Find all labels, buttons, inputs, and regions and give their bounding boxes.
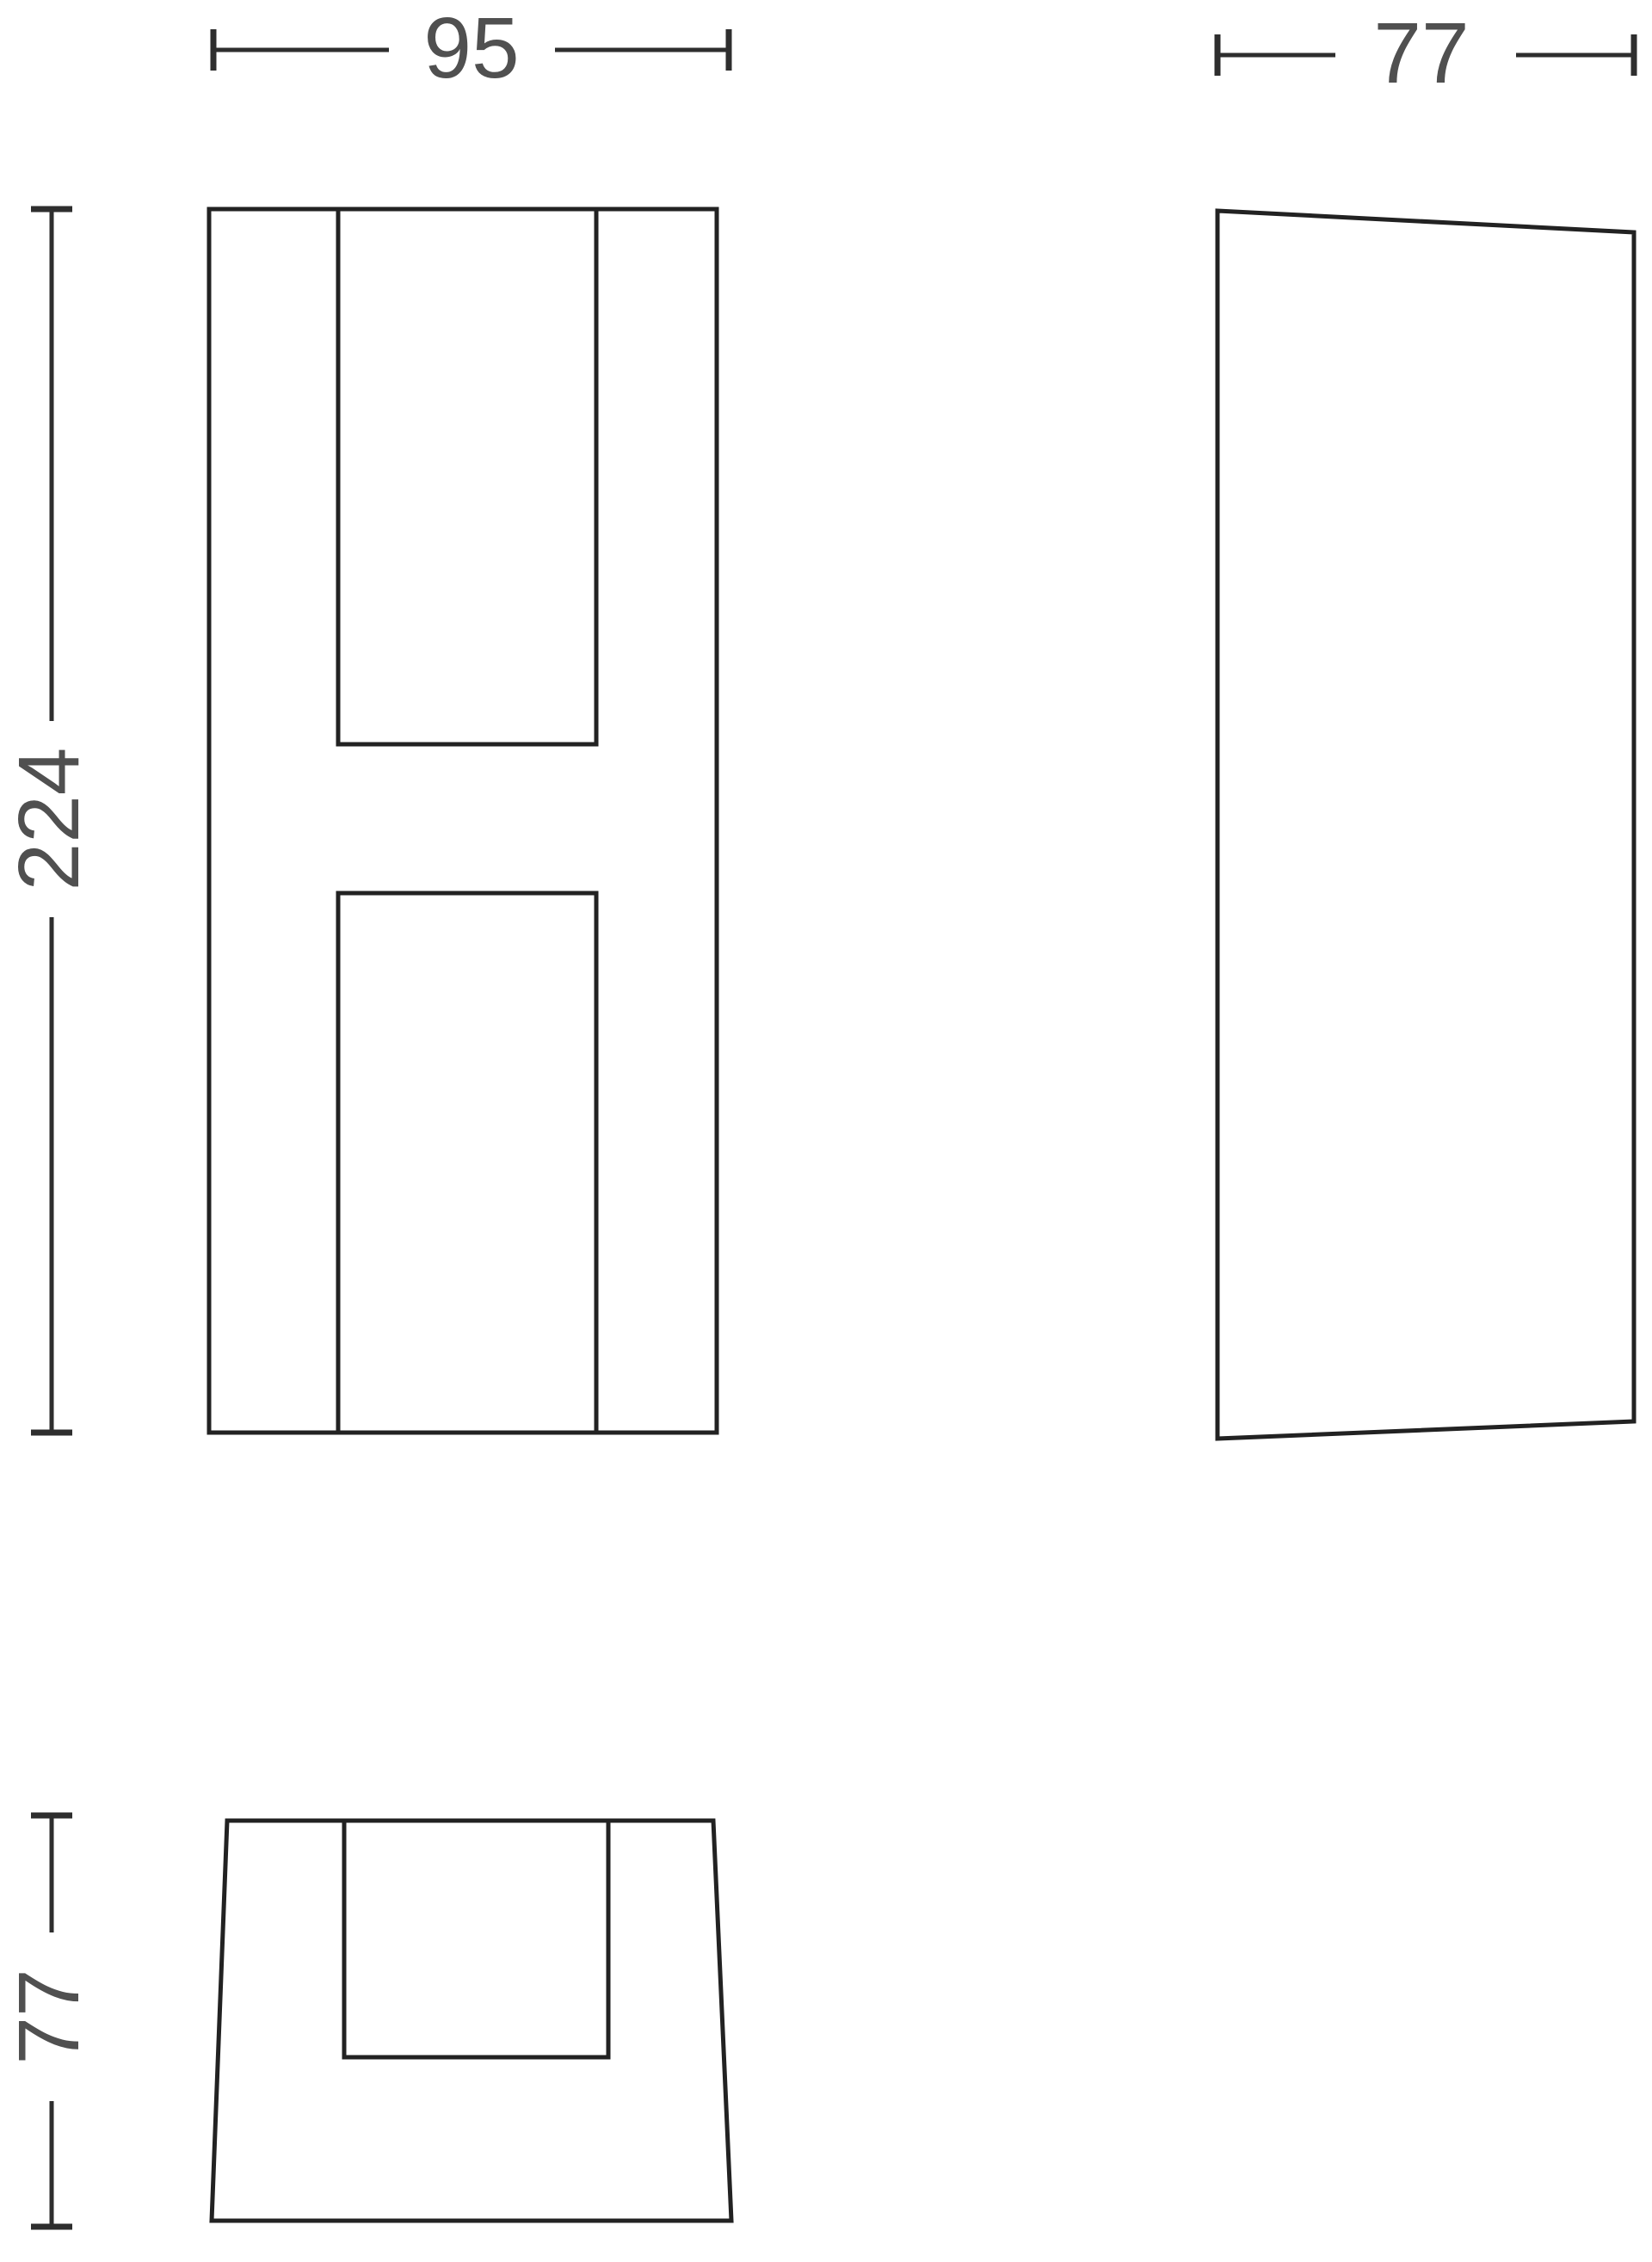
dim-width-95: 95	[213, 0, 729, 96]
side-view	[1217, 211, 1634, 1439]
dim-depth-77-side: 77	[1217, 5, 1634, 102]
dim-depth-77-bottom: 77	[1, 1815, 97, 2227]
bottom-view	[212, 1821, 731, 2221]
dimension-drawing-svg: 952247777	[0, 0, 1652, 2262]
front-recess-bottom	[338, 893, 596, 1433]
bottom-recess	[344, 1821, 608, 2057]
dim-height-224-label: 224	[1, 748, 97, 891]
dim-depth-77-bottom-label: 77	[1, 1969, 97, 2064]
drawing-page: 952247777	[0, 0, 1652, 2262]
front-recess-top	[338, 209, 596, 744]
dim-depth-77-side-label: 77	[1373, 5, 1469, 102]
side-outline	[1217, 211, 1634, 1439]
dim-height-224: 224	[1, 209, 97, 1433]
bottom-outline	[212, 1821, 731, 2221]
dim-width-95-label: 95	[423, 0, 519, 96]
front-view	[209, 209, 717, 1433]
front-outline	[209, 209, 717, 1433]
